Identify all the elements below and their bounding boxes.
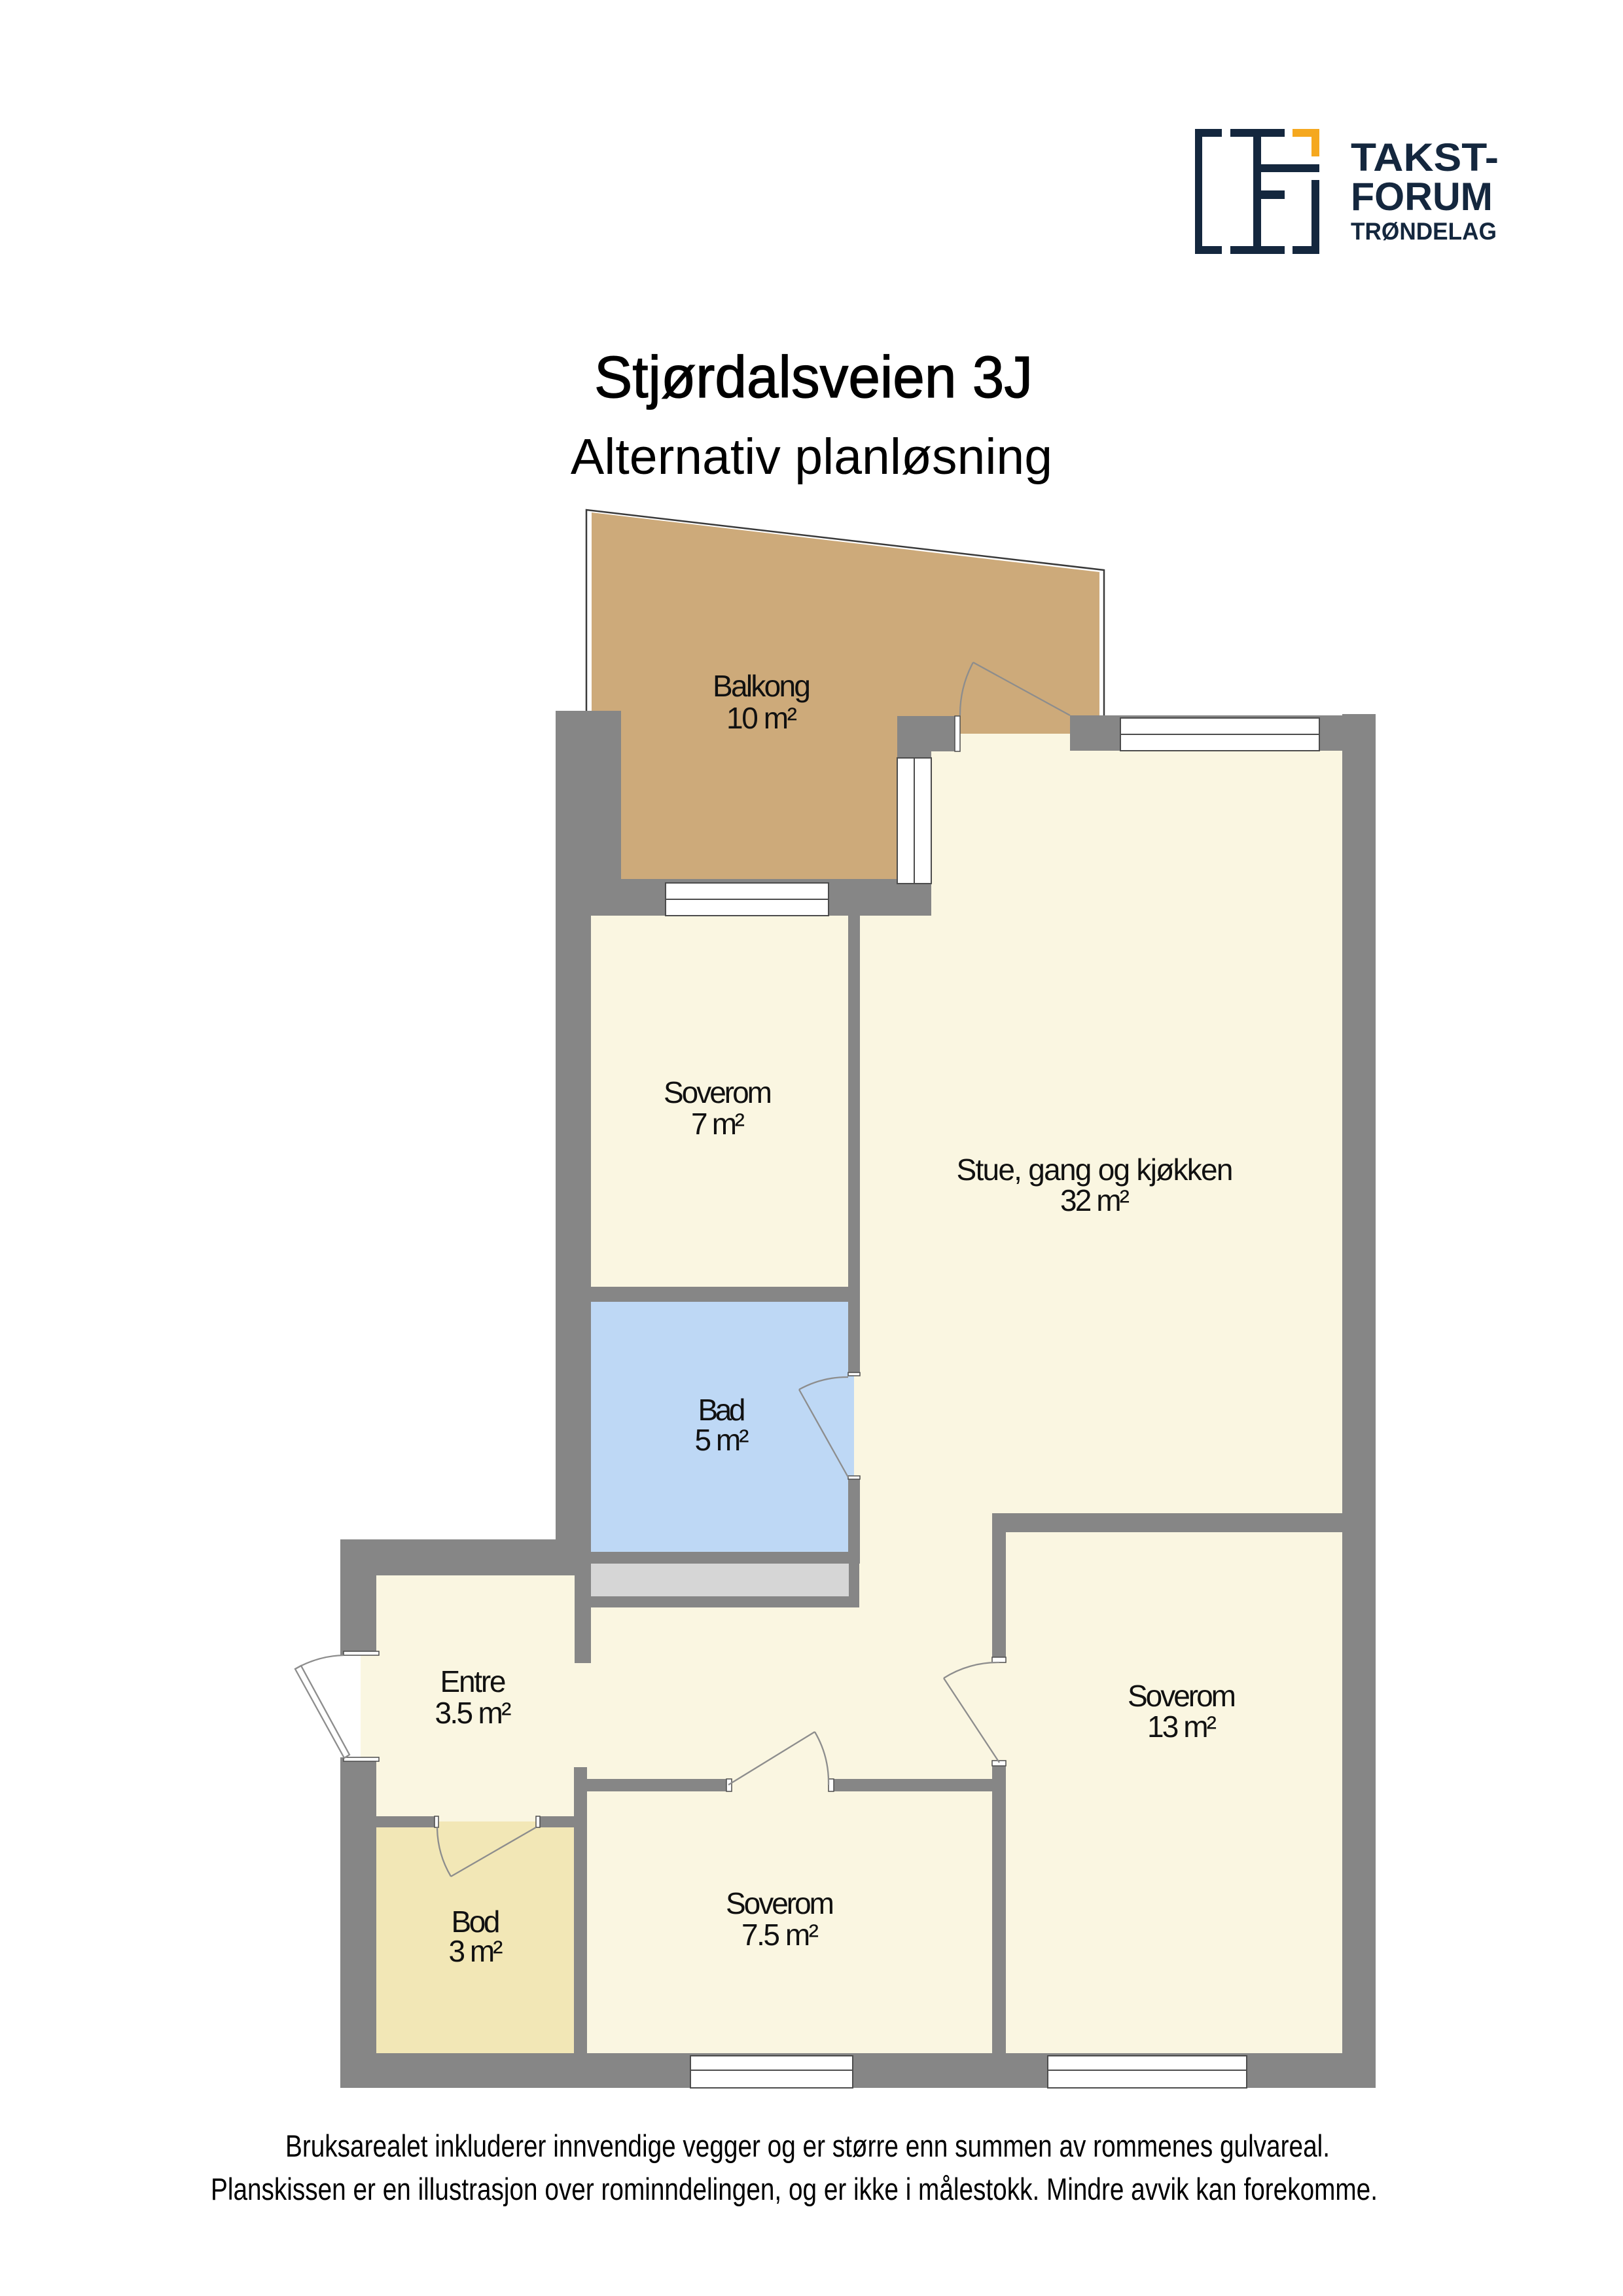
- svg-text:TRØNDELAG: TRØNDELAG: [1351, 218, 1497, 245]
- svg-text:Balkong: Balkong: [713, 669, 811, 703]
- svg-text:7.5 m²: 7.5 m²: [741, 1918, 819, 1952]
- svg-text:TAKST-: TAKST-: [1351, 135, 1499, 179]
- svg-text:Soverom: Soverom: [726, 1886, 834, 1920]
- svg-text:3 m²: 3 m²: [449, 1934, 503, 1968]
- svg-text:Stue, gang og kjøkken: Stue, gang og kjøkken: [957, 1153, 1234, 1187]
- svg-text:32 m²: 32 m²: [1060, 1183, 1130, 1217]
- svg-text:Bad: Bad: [698, 1393, 746, 1427]
- svg-text:FORUM: FORUM: [1351, 175, 1493, 219]
- svg-text:3.5 m²: 3.5 m²: [435, 1696, 512, 1730]
- svg-text:5 m²: 5 m²: [695, 1423, 749, 1457]
- svg-text:Stjørdalsveien 3J: Stjørdalsveien 3J: [594, 345, 1033, 410]
- svg-text:10 m²: 10 m²: [726, 701, 797, 735]
- svg-text:Soverom: Soverom: [1128, 1679, 1236, 1713]
- svg-text:Planskissen er en illustrasjon: Planskissen er en illustrasjon over romi…: [211, 2172, 1378, 2206]
- svg-text:7 m²: 7 m²: [691, 1107, 745, 1141]
- svg-text:Soverom: Soverom: [664, 1075, 772, 1109]
- svg-text:Alternativ planløsning: Alternativ planløsning: [571, 429, 1052, 485]
- svg-text:Bruksarealet inkluderer innven: Bruksarealet inkluderer innvendige vegge…: [285, 2128, 1330, 2163]
- svg-text:13 m²: 13 m²: [1147, 1710, 1217, 1744]
- svg-text:Entre: Entre: [440, 1664, 507, 1698]
